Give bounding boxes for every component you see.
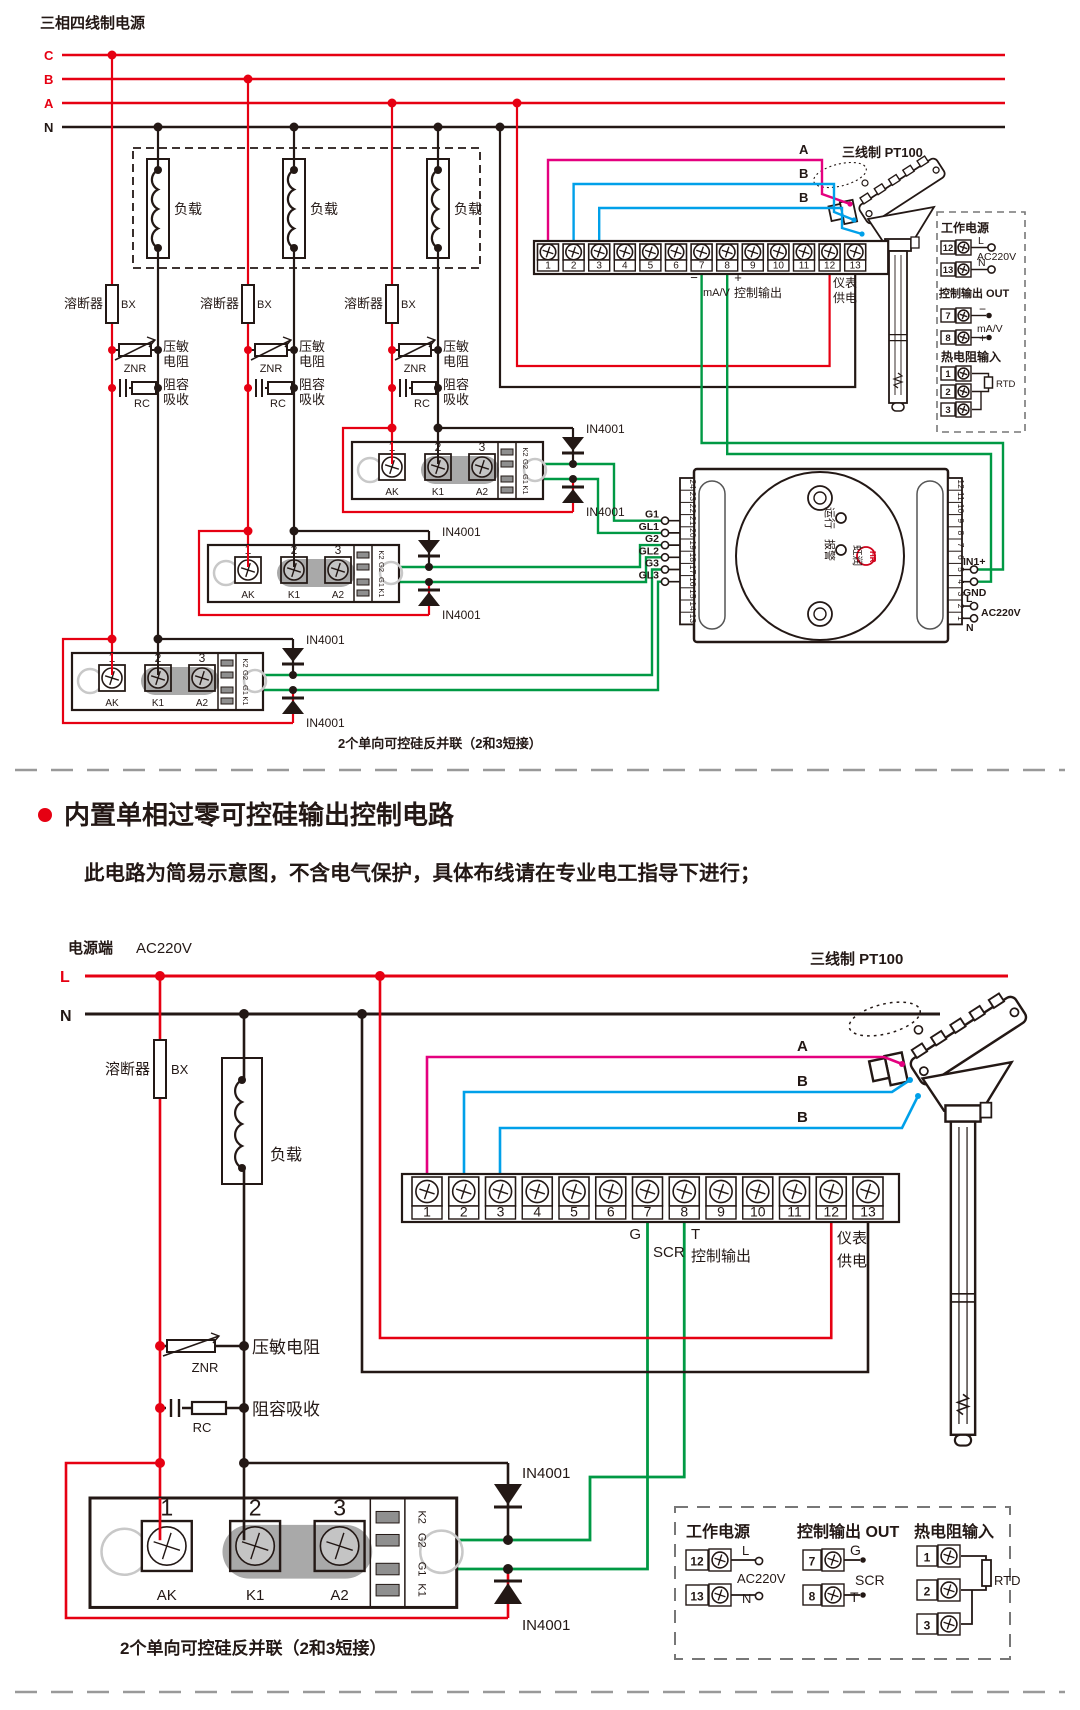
legend-top-plus: + — [979, 331, 986, 345]
gate-terminal — [357, 579, 369, 585]
module-terminal-name: A2 — [476, 487, 489, 498]
gate-terminal-label: G1 — [521, 474, 530, 484]
junction-dot — [239, 1458, 249, 1468]
legend-bot-rtd-title: 热电阻输入 — [914, 1522, 994, 1541]
phase-label-n: N — [44, 120, 53, 135]
module-terminal-name: K1 — [288, 590, 301, 601]
terminal-number: 1 — [423, 1204, 431, 1220]
diode-label: IN4001 — [442, 525, 481, 539]
pin-circle — [661, 566, 668, 573]
legend-top-rtd-code: RTD — [996, 379, 1015, 390]
bottom-rc-code: RC — [193, 1420, 212, 1435]
bottom-varistor-label: 压敏电阻 — [252, 1338, 320, 1357]
legend-rtd-resistor — [985, 377, 993, 388]
module-terminal-number: 3 — [479, 440, 486, 454]
terminal-number: 2 — [571, 261, 577, 272]
resistor-symbol — [412, 382, 436, 394]
junction-dot — [290, 527, 299, 536]
junction-dot — [108, 635, 117, 644]
gate-terminal — [357, 552, 369, 558]
legend-top-minus: − — [979, 302, 986, 316]
gate-terminal — [501, 461, 513, 467]
junction-dot — [244, 384, 252, 392]
pin-circle — [661, 529, 668, 536]
module-terminal-number: 2 — [249, 1494, 262, 1520]
sensor-dotted-outline — [811, 158, 869, 192]
schematic-svg: IN4001IN4001IN4001IN4001IN4001IN4001K2G2… — [0, 0, 1080, 1710]
strip-number: 24 — [688, 479, 698, 489]
cap-gap — [396, 378, 409, 398]
pin-dot — [986, 335, 992, 341]
module-terminal-name: AK — [385, 487, 399, 498]
varistor-label-1b: 电阻 — [163, 354, 189, 369]
diode-triangle — [562, 437, 584, 451]
terminal-number: 6 — [607, 1204, 615, 1220]
strip-number: 1 — [956, 616, 966, 621]
strip-number: 23 — [688, 492, 698, 502]
meter-supply-live — [517, 103, 830, 366]
pin-stub — [669, 521, 680, 533]
diode-label: IN4001 — [586, 505, 625, 519]
pin-dot — [860, 1592, 866, 1598]
fuse-symbol — [242, 285, 254, 323]
terminal-number: 4 — [622, 261, 628, 272]
terminal-number: 12 — [823, 1204, 839, 1220]
fuse-code-3: BX — [401, 299, 416, 311]
diode-triangle — [282, 648, 304, 662]
rc-label-1b: 吸收 — [163, 392, 189, 407]
sensor-collar — [945, 1105, 980, 1121]
tb-meter-2: 供电 — [833, 291, 857, 305]
strip-number: 16 — [688, 577, 698, 587]
terminal-number: 2 — [460, 1204, 468, 1220]
resistor-symbol — [192, 1402, 226, 1414]
legend-top-n: N — [978, 257, 986, 269]
gate-terminal-label: G2 — [241, 670, 250, 680]
varistor-label-2b: 电阻 — [299, 354, 325, 369]
bottom-znr-code: ZNR — [192, 1360, 219, 1375]
strip-number: 7 — [956, 543, 966, 548]
gate-label-gl1: GL1 — [639, 521, 660, 533]
bottom-caption: 2个单向可控硅反并联（2和3短接） — [120, 1638, 386, 1658]
terminal-number: 11 — [787, 1204, 802, 1220]
fuse-code-2: BX — [257, 299, 272, 311]
gate-terminal — [376, 1511, 399, 1523]
gate-label-gl3: GL3 — [639, 570, 660, 582]
legend-number: 8 — [945, 333, 950, 344]
terminal-number: 13 — [860, 1204, 876, 1220]
bottom-diode-label-1: IN4001 — [522, 1465, 570, 1482]
pin-stub — [669, 570, 680, 582]
tb-mav: mA/V — [703, 287, 731, 299]
legend-bot-scr: SCR — [855, 1572, 885, 1588]
strip-number: 20 — [688, 528, 698, 538]
bottom-rc-label: 阻容吸收 — [252, 1400, 320, 1419]
legend-number: 3 — [945, 405, 950, 416]
legend-lead — [961, 1590, 972, 1624]
ctrl-in1-label: IN1+ — [963, 556, 985, 568]
diode-label: IN4001 — [586, 422, 625, 436]
rc-label-2b: 吸收 — [299, 392, 325, 407]
junction-dot — [496, 123, 505, 132]
legend-rtd-resistor — [982, 1560, 991, 1586]
terminal-number: 10 — [773, 261, 785, 272]
pin-circle — [970, 578, 977, 585]
junction-dot — [434, 384, 442, 392]
legend-bot-g: G — [850, 1542, 861, 1558]
phase-label-b: B — [44, 72, 53, 87]
legend-number: 7 — [809, 1555, 816, 1569]
ctrl-alarm-label: 报警 — [823, 539, 837, 561]
probe-tip — [955, 1435, 971, 1446]
legend-number: 12 — [943, 243, 954, 254]
controller-screw — [808, 602, 832, 626]
legend-number: 2 — [945, 387, 950, 398]
junction-dot — [290, 123, 299, 132]
junction-dot — [434, 424, 443, 433]
module-terminal-name: A2 — [330, 1587, 348, 1604]
legend-bot-rtd-code: RTD — [994, 1573, 1020, 1588]
strip-number: 15 — [688, 589, 698, 599]
module-terminal-number: 3 — [335, 543, 342, 557]
legend-number: 12 — [690, 1555, 704, 1569]
strip-number: 21 — [688, 516, 698, 526]
junction-dot — [859, 231, 864, 236]
rc-label-3b: 吸收 — [443, 392, 469, 407]
junction-dot — [108, 346, 116, 354]
junction-dot — [290, 346, 298, 354]
module-terminal-number: 3 — [199, 651, 206, 665]
tb-meter-1: 仪表 — [833, 276, 857, 290]
pin-circle — [755, 1592, 762, 1599]
varistor-label-3a: 压敏 — [443, 339, 469, 354]
pin-circle — [970, 615, 977, 622]
junction-dot — [513, 99, 522, 108]
terminal-number: 12 — [824, 261, 836, 272]
cap-gap — [252, 378, 265, 398]
legend-number: 1 — [945, 369, 951, 380]
bottom-tb-meter-2: 供电 — [837, 1253, 867, 1270]
gate-terminal — [501, 449, 513, 455]
sensor-dotted-outline — [846, 996, 924, 1042]
junction-dot — [155, 1403, 165, 1413]
pt100-sensor — [811, 152, 946, 411]
gate-label-g3: G3 — [645, 558, 659, 570]
gate-terminal-label: K2 — [415, 1510, 427, 1523]
junction-dot — [244, 527, 253, 536]
junction-dot — [503, 1564, 513, 1574]
gate-terminal — [357, 564, 369, 570]
legend-number: 8 — [809, 1590, 816, 1604]
module-terminal-name: K1 — [246, 1587, 264, 1604]
terminal-number: 13 — [850, 261, 862, 272]
rtd-wire-b1 — [574, 184, 854, 241]
bottom-voltage: AC220V — [136, 940, 192, 957]
znr-code-3: ZNR — [404, 363, 427, 375]
bottom-diode-label-2: IN4001 — [522, 1617, 570, 1634]
section-title: 内置单相过零可控硅输出控制电路 — [64, 800, 455, 830]
fuse-symbol — [106, 285, 118, 323]
terminal-number: 3 — [497, 1204, 505, 1220]
bottom-wire-b2: B — [797, 1109, 808, 1126]
wire-label-b1: B — [799, 166, 808, 181]
fuse-code-1: BX — [121, 299, 136, 311]
strip-number: 13 — [688, 614, 698, 624]
gate-terminal-label: K1 — [521, 485, 530, 494]
diode-triangle — [418, 540, 440, 554]
pin-circle — [661, 542, 668, 549]
line-label-l: L — [60, 969, 70, 986]
gate-terminal-label: K1 — [241, 696, 250, 705]
junction-dot — [155, 971, 165, 981]
tb-plus: + — [734, 270, 742, 285]
terminal-number: 1 — [545, 261, 551, 272]
gate-terminal-label: G2 — [377, 562, 386, 572]
junction-dot — [388, 99, 397, 108]
legend-bot-power-title: 工作电源 — [686, 1522, 750, 1541]
legend-top-out-title: 控制输出 OUT — [939, 286, 1010, 300]
strip-number: 18 — [688, 553, 698, 563]
junction-dot — [108, 384, 116, 392]
line-label-n: N — [60, 1008, 72, 1025]
junction-dot — [154, 346, 162, 354]
pin-circle — [661, 517, 668, 524]
junction-dot — [434, 346, 442, 354]
sensor-probe — [951, 1122, 975, 1435]
legend-number: 13 — [690, 1590, 704, 1604]
gate-label-g2: G2 — [645, 533, 659, 545]
diode-triangle — [418, 592, 440, 606]
sensor-tag — [911, 237, 919, 248]
gate-label-gl2: GL2 — [639, 545, 660, 557]
terminal-number: 3 — [596, 261, 602, 272]
phase-label-c: C — [44, 48, 54, 63]
section-subtitle: 此电路为简易示意图，不含电气保护，具体布线请在专业电工指导下进行； — [84, 861, 761, 885]
junction-dot — [907, 1077, 913, 1083]
bottom-power-label: 电源端 — [68, 939, 113, 957]
sensor-tag — [981, 1103, 992, 1118]
terminal-number: 8 — [724, 261, 730, 272]
pin-circle — [661, 554, 668, 561]
junction-dot — [434, 123, 443, 132]
strip-number: 11 — [956, 492, 966, 501]
strip-number: 17 — [688, 565, 698, 575]
gate-terminal-label: K2 — [521, 447, 530, 456]
diode-label: IN4001 — [442, 608, 481, 622]
bottom-tb-g: G — [629, 1226, 641, 1243]
gate-terminal-label: K2 — [377, 550, 386, 559]
junction-dot — [155, 1458, 165, 1468]
module-terminal-name: AK — [157, 1587, 177, 1604]
diode-triangle — [494, 1484, 522, 1505]
load-label-1: 负载 — [174, 201, 202, 217]
gate-terminal — [221, 660, 233, 666]
legend-number: 7 — [945, 311, 950, 322]
diode-triangle — [562, 489, 584, 503]
strip-number: 9 — [956, 518, 966, 523]
znr-code-2: ZNR — [260, 363, 283, 375]
diode-label: IN4001 — [306, 716, 345, 730]
bottom-fuse-code: BX — [171, 1062, 189, 1077]
rc-label-3a: 阻容 — [443, 377, 469, 392]
junction-dot — [244, 75, 253, 84]
bottom-wire-b1: B — [797, 1073, 808, 1090]
junction-dot — [569, 475, 577, 483]
sensor-screw — [914, 1026, 922, 1034]
junction-dot — [154, 123, 163, 132]
rc-code-3: RC — [414, 398, 430, 410]
junction-dot — [915, 1093, 921, 1099]
sensor-gland — [869, 1058, 889, 1081]
legend-bot-n: N — [742, 1591, 751, 1606]
module-terminal-name: A2 — [332, 590, 345, 601]
strip-number: 2 — [956, 604, 966, 609]
resistor-symbol — [132, 382, 156, 394]
gate-label-g1: G1 — [645, 509, 659, 521]
junction-dot — [154, 384, 162, 392]
gate-terminal-label: K2 — [241, 658, 250, 667]
gate-terminal — [357, 590, 369, 596]
bottom-load-label: 负载 — [270, 1146, 302, 1164]
varistor-label-3b: 电阻 — [443, 354, 469, 369]
junction-dot — [155, 1341, 165, 1351]
strip-number: 10 — [956, 504, 966, 514]
strip-number: 19 — [688, 540, 698, 550]
bottom-tb-t: T — [691, 1226, 700, 1243]
legend-top-l: L — [978, 235, 984, 247]
junction-dot — [847, 201, 852, 206]
gate-terminal-label: G1 — [241, 685, 250, 695]
junction-dot — [375, 971, 385, 981]
pin-circle — [988, 266, 995, 273]
junction-dot — [851, 217, 856, 222]
pin-dot — [860, 1557, 866, 1563]
junction-dot — [899, 1061, 905, 1067]
terminal-number: 9 — [750, 261, 756, 272]
wire-label-b2: B — [799, 190, 808, 205]
terminal-number: 11 — [799, 261, 810, 272]
diode-triangle — [282, 700, 304, 714]
junction-dot — [357, 1009, 367, 1019]
bottom-tb-ctrl-out: 控制输出 — [691, 1248, 751, 1265]
junction-dot — [244, 346, 252, 354]
module-terminal-name: K1 — [152, 698, 165, 709]
wiring-diagram-page: IN4001IN4001IN4001IN4001IN4001IN4001K2G2… — [0, 0, 1080, 1710]
bottom-tb-meter-1: 仪表 — [837, 1230, 867, 1247]
gate-terminal — [221, 687, 233, 693]
strip-number: 12 — [956, 479, 966, 489]
junction-dot — [388, 346, 396, 354]
meter-supply-live — [380, 976, 831, 1338]
diode-triangle — [494, 1583, 522, 1604]
ctrl-logo-hr: HR — [868, 551, 877, 563]
rc-code-1: RC — [134, 398, 150, 410]
znr-code-1: ZNR — [124, 363, 147, 375]
fuse-symbol — [154, 1040, 166, 1098]
gate-terminal-label: G2 — [521, 459, 530, 469]
gate-wire — [372, 557, 661, 582]
junction-dot — [425, 563, 433, 571]
gate-terminal-label: G1 — [415, 1562, 427, 1577]
strip-number: 22 — [688, 504, 698, 514]
legend-number: 2 — [924, 1585, 931, 1599]
module-terminal-name: AK — [241, 590, 255, 601]
gate-terminal-label: K1 — [377, 588, 386, 597]
ctrl-brand-label: 虹润 — [851, 545, 864, 566]
junction-dot — [154, 635, 163, 644]
legend-top-rtd-title: 热电阻输入 — [941, 349, 1001, 364]
legend-lead — [972, 392, 981, 410]
pt100-label-bottom: 三线制 PT100 — [810, 950, 903, 968]
bottom-tb-scr: SCR — [653, 1244, 685, 1261]
gate-terminal — [501, 487, 513, 493]
top-title: 三相四线制电源 — [40, 14, 145, 32]
junction-dot — [290, 384, 298, 392]
legend-bot-ac: AC220V — [737, 1571, 786, 1586]
probe-tip — [892, 403, 904, 411]
legend-number: 3 — [924, 1619, 931, 1633]
fuse-label-3: 溶断器 — [344, 296, 383, 311]
gate-terminal — [221, 698, 233, 704]
junction-dot — [388, 384, 396, 392]
module-terminal-name: K1 — [432, 487, 445, 498]
legend-number: 13 — [943, 265, 954, 276]
legend-bot-t: T — [850, 1589, 859, 1605]
terminal-number: 8 — [680, 1204, 688, 1220]
wire-label-a: A — [799, 142, 809, 157]
gate-terminal — [376, 1563, 399, 1575]
ctrl-n-label: N — [966, 622, 974, 634]
terminal-number: 9 — [717, 1204, 725, 1220]
ctrl-ac-label: AC220V — [981, 607, 1021, 619]
pin-dot — [986, 313, 992, 319]
junction-dot — [569, 460, 577, 468]
junction-dot — [239, 1341, 249, 1351]
tb-ctrl-out: 控制输出 — [734, 285, 782, 300]
strip-number: 8 — [956, 531, 966, 536]
module-terminal-name: A2 — [196, 698, 209, 709]
junction-dot — [388, 424, 397, 433]
gate-terminal — [221, 672, 233, 678]
fuse-symbol — [386, 285, 398, 323]
ctrl-l-label: L — [966, 593, 973, 605]
legend-bot-l: L — [742, 1543, 749, 1558]
junction-dot — [239, 1009, 249, 1019]
sensor-screw — [862, 180, 868, 186]
rtd-wire-b2 — [599, 208, 862, 241]
junction-dot — [289, 671, 297, 679]
module-terminal-number: 1 — [160, 1494, 173, 1520]
gate-terminal — [376, 1584, 399, 1596]
strip-number: 4 — [956, 579, 966, 584]
terminal-number: 4 — [533, 1204, 541, 1220]
fuse-label-1: 溶断器 — [64, 296, 103, 311]
ctrl-run-label: 运行 — [823, 507, 836, 529]
terminal-number: 7 — [644, 1204, 652, 1220]
pt100-label-top: 三线制 PT100 — [842, 145, 923, 160]
legend-bot-out-title: 控制输出 OUT — [797, 1522, 899, 1541]
junction-dot — [425, 578, 433, 586]
diode-label: IN4001 — [306, 633, 345, 647]
junction-dot — [503, 1535, 513, 1545]
gate-terminal-label: G2 — [415, 1533, 427, 1548]
load-label-2: 负载 — [310, 201, 338, 217]
legend-top-power-title: 工作电源 — [941, 220, 989, 235]
rc-label-1a: 阻容 — [163, 377, 189, 392]
legend-number: 1 — [924, 1551, 931, 1565]
load-label-3: 负载 — [454, 201, 482, 217]
terminal-number: 10 — [750, 1204, 766, 1220]
